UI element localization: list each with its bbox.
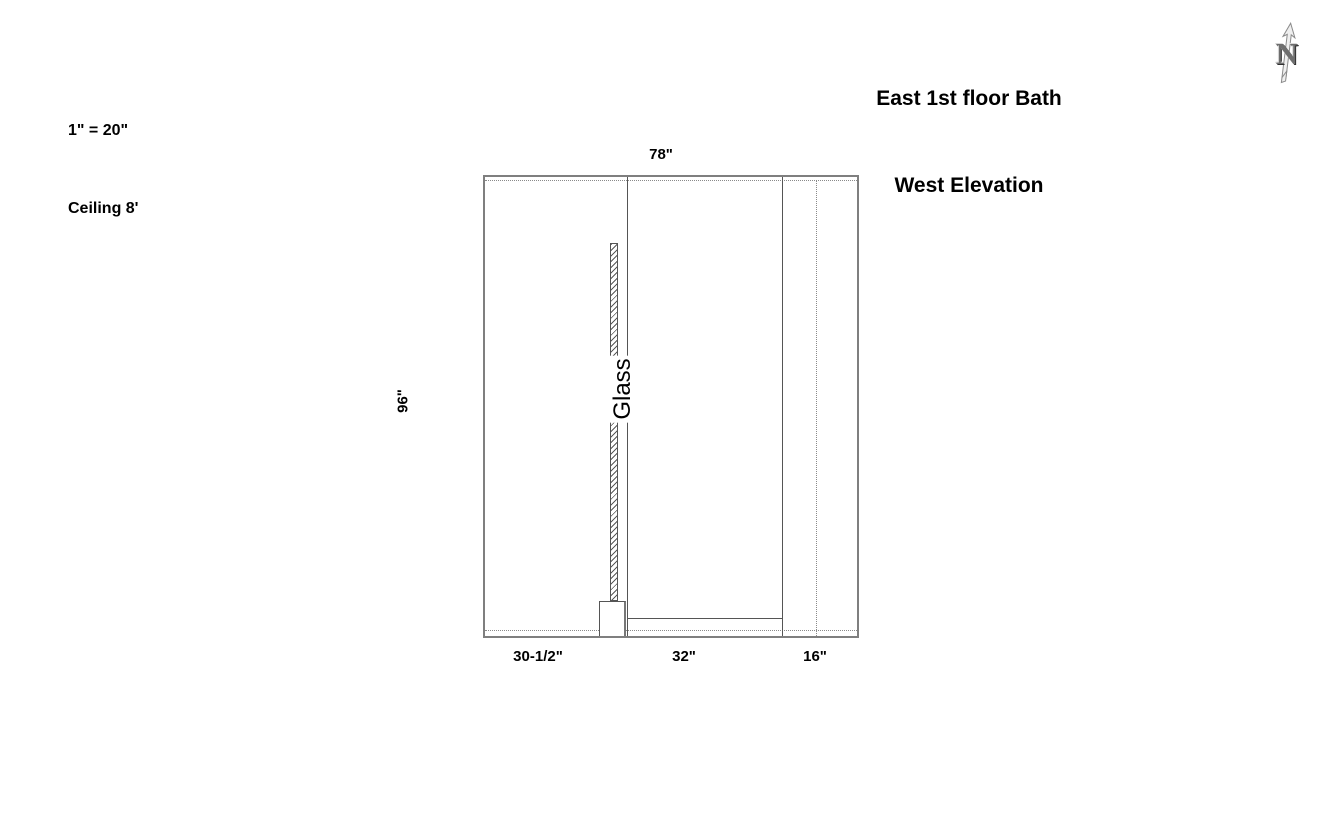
dim-right-segment: 16": [803, 648, 827, 665]
glass-panel-base: [599, 601, 626, 638]
counter-line: [628, 618, 783, 619]
ceiling-hidden-line: [485, 180, 857, 181]
dim-overall-width: 78": [649, 146, 673, 163]
north-arrow-letter: N: [1276, 36, 1298, 72]
elevation-drawing: Glass: [483, 175, 859, 638]
scale-note: 1" = 20" Ceiling 8': [68, 66, 138, 274]
title-line2: West Elevation: [876, 171, 1062, 200]
partition-line-right: [782, 175, 783, 638]
stud-hidden-line: [816, 180, 817, 636]
wall-outline: [483, 175, 859, 638]
scale-label: 1" = 20": [68, 118, 138, 144]
elevation-sheet: 1" = 20" Ceiling 8' East 1st floor Bath …: [0, 0, 1344, 816]
glass-label: Glass: [609, 355, 637, 422]
dim-left-segment: 30-1/2": [513, 648, 563, 665]
ceiling-label: Ceiling 8': [68, 196, 138, 222]
dim-middle-segment: 32": [672, 648, 696, 665]
floor-hidden-line: [485, 630, 857, 631]
title-line1: East 1st floor Bath: [876, 84, 1062, 113]
sheet-title: East 1st floor Bath West Elevation: [876, 26, 1062, 258]
dim-overall-height: 96": [395, 389, 412, 413]
north-arrow: N: [1264, 22, 1310, 84]
